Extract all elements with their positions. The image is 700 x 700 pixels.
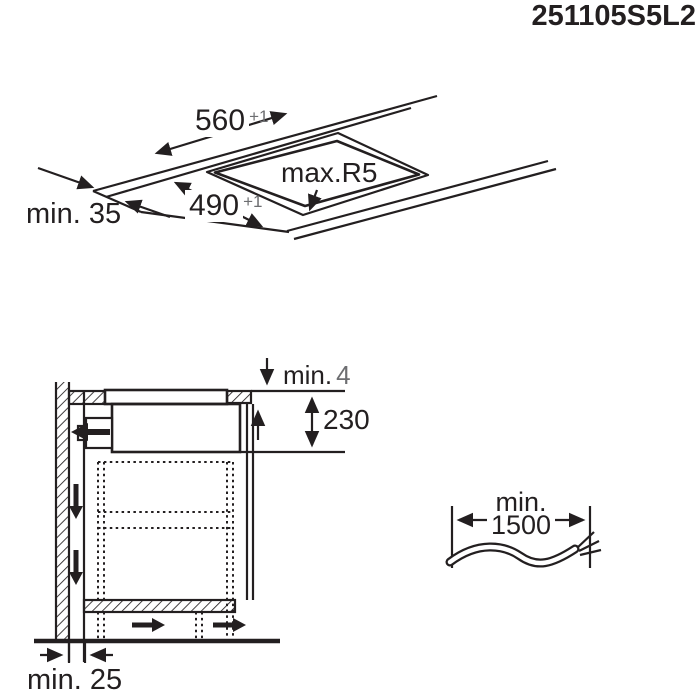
cutout-depth-tolerance: +1 (243, 192, 262, 211)
hob-depth-label: 230 (323, 406, 370, 434)
countertop-right (227, 391, 251, 403)
top-gap-label: min.4 (279, 361, 351, 389)
airflow-arrow-right-2 (213, 618, 246, 632)
cutout-width-dimension: 560+1 (191, 105, 268, 137)
installation-diagram: 251105S5L2 560+1 490+1 max.R5 min. 35 mi… (0, 0, 700, 700)
corner-radius-pointer-arrow (310, 190, 317, 209)
wall-hatch (56, 382, 69, 640)
hob-glass-top (105, 390, 227, 404)
cutout-depth-dimension: 490+1 (185, 190, 262, 222)
countertop-left (69, 391, 107, 404)
drawer-dashed-outline (98, 462, 233, 640)
cabinet-section-view (34, 358, 345, 663)
diagram-linework (0, 0, 700, 700)
part-number: 251105S5L2 (524, 2, 696, 31)
cutout-width-tolerance: +1 (249, 107, 268, 126)
cutout-depth-value: 490 (185, 190, 243, 222)
cabinet-bottom-panel (84, 600, 235, 612)
airflow-arrow-right-1 (132, 618, 165, 632)
hob-body (112, 404, 240, 452)
cutout-width-value: 560 (191, 105, 249, 137)
wall-gap-label: min. 25 (27, 666, 122, 695)
top-gap-min-label: min. (279, 361, 336, 389)
cable-length-label: 1500 (452, 511, 590, 540)
cable-length-value: 1500 (487, 511, 555, 540)
front-clearance-label: min. 35 (26, 200, 121, 229)
min35-arrow-upper (38, 168, 92, 187)
airflow-arrow-down-2 (69, 550, 83, 585)
top-gap-value: 4 (336, 360, 350, 390)
corner-radius-label: max.R5 (281, 159, 377, 187)
airflow-arrow-down-1 (69, 484, 83, 519)
